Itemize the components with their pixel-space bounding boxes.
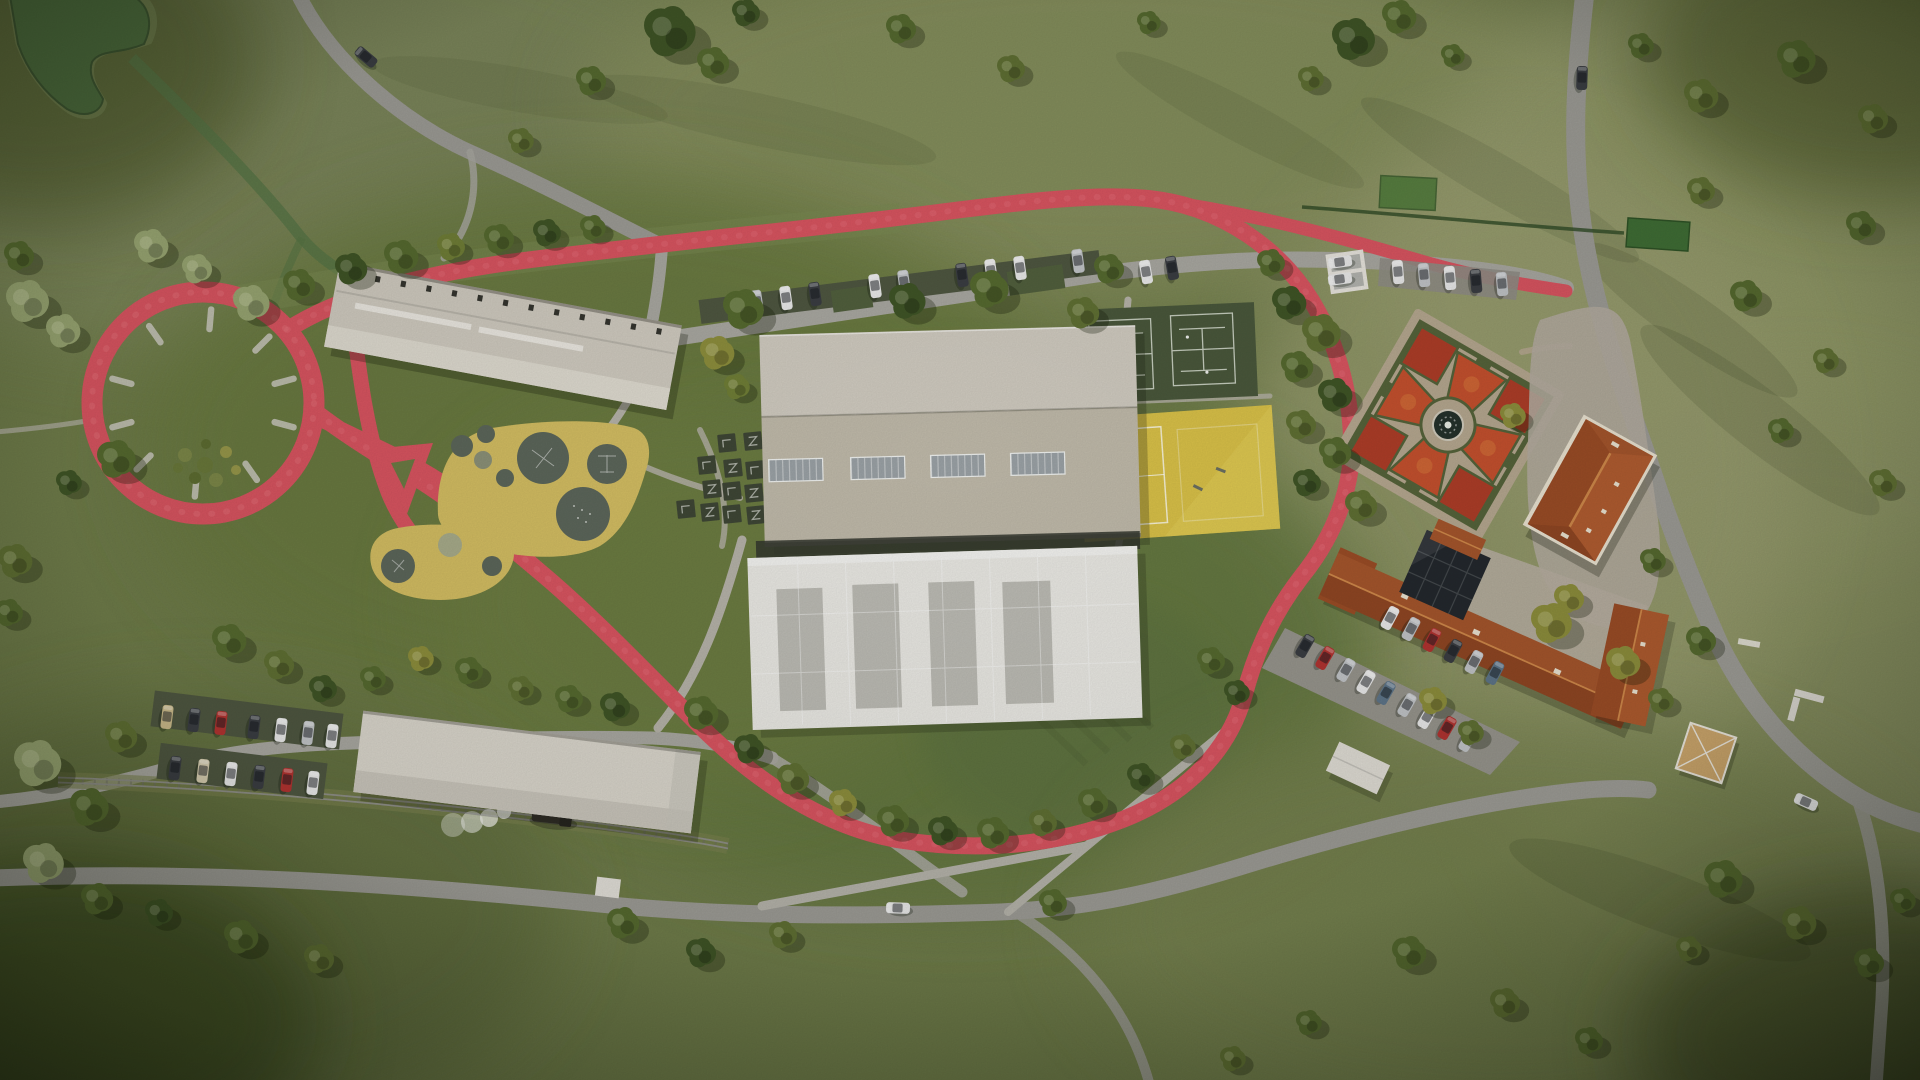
aerial-site-render: [0, 0, 1920, 1080]
vignette: [0, 0, 1920, 1080]
site-plan-canvas: [0, 0, 1920, 1080]
